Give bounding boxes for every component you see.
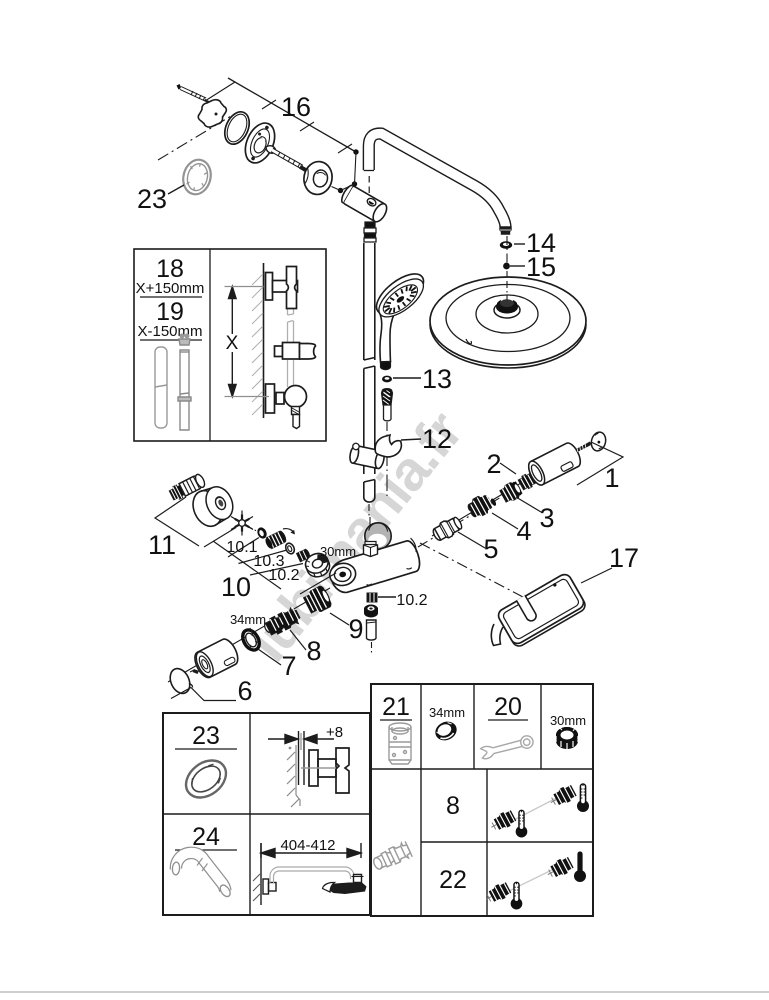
svg-text:1: 1 (604, 463, 619, 493)
svg-text:9: 9 (348, 614, 363, 644)
svg-text:6: 6 (237, 676, 252, 706)
svg-text:5: 5 (483, 534, 498, 564)
svg-text:12: 12 (422, 424, 452, 454)
svg-text:X: X (226, 333, 239, 354)
svg-text:20: 20 (494, 693, 522, 721)
svg-text:19: 19 (156, 298, 184, 326)
svg-text:X+150mm: X+150mm (136, 280, 205, 297)
svg-text:23: 23 (192, 722, 220, 750)
svg-text:16: 16 (281, 92, 311, 122)
svg-text:404-412: 404-412 (280, 837, 335, 854)
svg-text:15: 15 (526, 252, 556, 282)
svg-text:3: 3 (539, 503, 554, 533)
svg-text:10: 10 (221, 572, 251, 602)
svg-text:2: 2 (486, 449, 501, 479)
svg-text:22: 22 (439, 866, 467, 894)
svg-text:24: 24 (192, 823, 220, 851)
svg-text:13: 13 (422, 364, 452, 394)
svg-text:23: 23 (137, 184, 167, 214)
svg-text:8: 8 (446, 792, 460, 820)
svg-text:4: 4 (516, 516, 531, 546)
svg-text:30mm: 30mm (320, 544, 356, 559)
svg-text:10.2: 10.2 (396, 592, 427, 609)
svg-text:34mm: 34mm (429, 705, 465, 720)
svg-text:10.2: 10.2 (268, 567, 299, 584)
svg-text:18: 18 (156, 255, 184, 283)
svg-text:17: 17 (609, 543, 639, 573)
svg-text:11: 11 (148, 530, 176, 560)
svg-text:21: 21 (382, 693, 410, 721)
svg-text:30mm: 30mm (550, 713, 586, 728)
svg-text:8: 8 (306, 636, 321, 666)
svg-text:34mm: 34mm (230, 612, 266, 627)
svg-text:X-150mm: X-150mm (137, 323, 202, 340)
svg-text:7: 7 (281, 651, 296, 681)
